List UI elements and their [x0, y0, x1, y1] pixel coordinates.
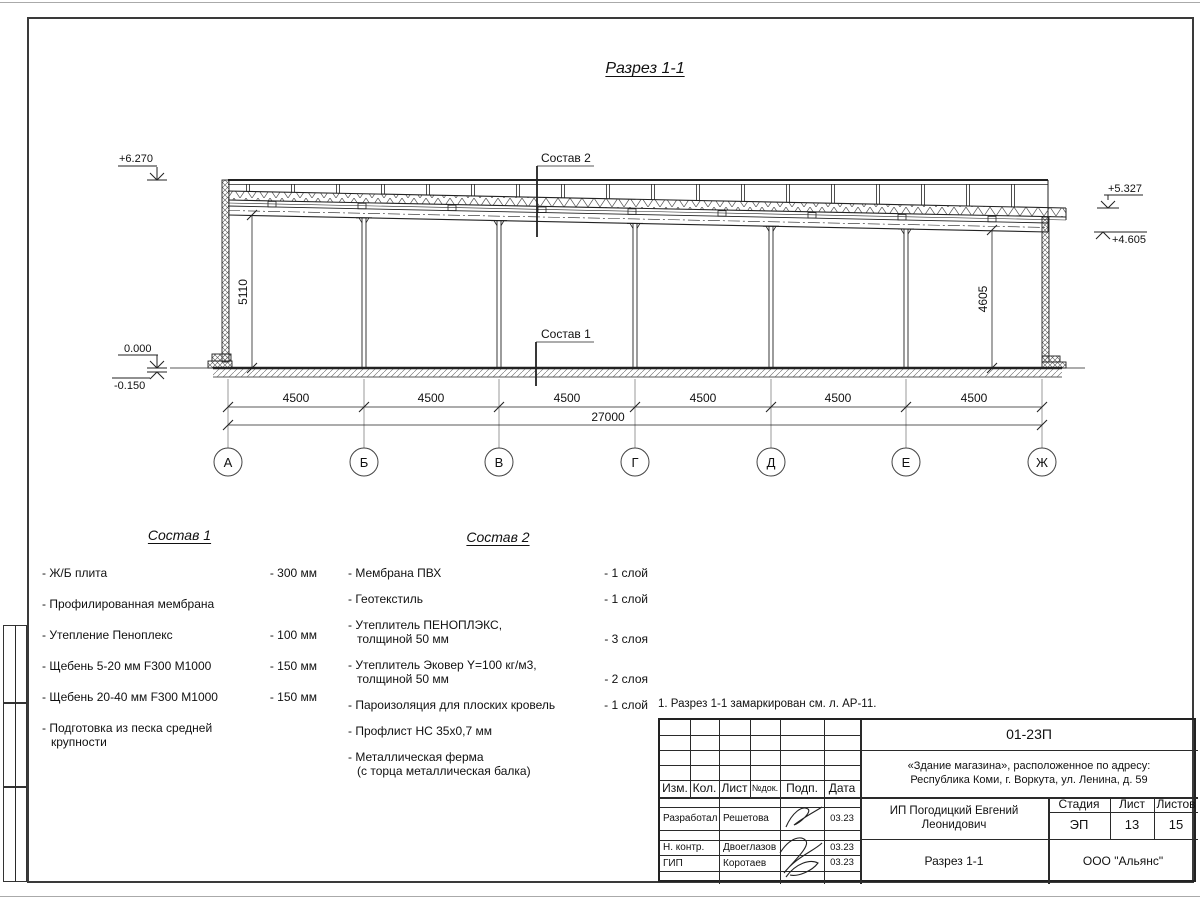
tb-project: «Здание магазина», расположенное по адре… — [860, 750, 1198, 797]
drawing-sheet: { "title": "Разрез 1-1", "section": { "l… — [0, 0, 1200, 900]
material-item: - Геотекстиль- 1 слой — [348, 592, 648, 606]
tb-header-sheets: Листов — [1154, 797, 1198, 812]
tb-header-sheet: Лист — [1110, 797, 1154, 812]
tb-name-0: Решетова — [723, 807, 780, 830]
material-value: - 3 слоя — [604, 632, 648, 646]
material-value: - 150 мм — [270, 690, 317, 704]
material-name: - Профилированная мембрана — [42, 597, 214, 611]
material-name: - Утеплитель ПЕНОПЛЭКС, толщиной 50 мм — [348, 618, 502, 646]
tb-header-data: Дата — [824, 780, 860, 797]
material-value: - 1 слой — [604, 592, 648, 606]
tb-role-2: ГИП — [663, 855, 719, 871]
note: 1. Разрез 1-1 замаркирован см. л. АР-11. — [658, 698, 1078, 710]
material-name: - Утепление Пеноплекс — [42, 628, 173, 642]
material-name: - Утеплитель Эковер Y=100 кг/м3, толщино… — [348, 658, 537, 686]
tb-date-0: 03.23 — [824, 807, 860, 830]
tb-name-1: Двоеглазов — [723, 840, 780, 855]
page-title: Разрез 1-1 — [560, 60, 730, 78]
material-value: - 2 слоя — [604, 672, 648, 686]
material-item: - Щебень 20-40 мм F300 М1000- 150 мм — [42, 690, 317, 704]
material-item: - Утеплитель Эковер Y=100 кг/м3, толщино… — [348, 658, 648, 686]
material-name: - Щебень 20-40 мм F300 М1000 — [42, 690, 218, 704]
material-name: - Мембрана ПВХ — [348, 566, 441, 580]
tb-date-2: 03.23 — [824, 855, 860, 871]
material-value: - 300 мм — [270, 566, 317, 580]
tb-drawing-title: Разрез 1-1 — [860, 839, 1048, 884]
tb-sheet-value: 13 — [1110, 812, 1154, 839]
material-name: - Подготовка из песка средней крупности — [42, 721, 212, 749]
material-name: - Щебень 5-20 мм F300 М1000 — [42, 659, 211, 673]
sheet-top-edge — [0, 2, 1200, 3]
material-item: - Металлическая ферма (с торца металличе… — [348, 750, 648, 778]
tb-header-izm: Изм. — [660, 780, 690, 797]
tb-date-1: 03.23 — [824, 840, 860, 855]
material-name: - Геотекстиль — [348, 592, 425, 606]
tb-header-stadia: Стадия — [1048, 797, 1110, 812]
sostav2-heading: Состав 2 — [348, 529, 648, 545]
material-name: - Металлическая ферма (с торца металличе… — [348, 750, 531, 778]
signature-1 — [778, 803, 826, 831]
signature-2 — [774, 833, 828, 881]
material-item: - Профлист НС 35х0,7 мм — [348, 724, 648, 738]
tb-doc-number: 01-23П — [860, 720, 1198, 750]
material-value: - 1 слой — [604, 698, 648, 712]
tb-project-line2: Республика Коми, г. Воркута, ул. Ленина,… — [910, 774, 1147, 788]
tb-header-podp: Подп. — [780, 780, 824, 797]
material-item: - Утепление Пеноплекс- 100 мм — [42, 628, 317, 642]
tb-name-2: Коротаев — [723, 855, 780, 871]
material-item: - Мембрана ПВХ- 1 слой — [348, 566, 648, 580]
tb-role-0: Разработал — [663, 807, 719, 830]
material-name: - Пароизоляция для плоских кровель — [348, 698, 555, 712]
tb-role-1: Н. контр. — [663, 840, 719, 855]
sostav1-list: - Ж/Б плита- 300 мм- Профилированная мем… — [42, 566, 317, 766]
tb-project-line1: «Здание магазина», расположенное по адре… — [908, 760, 1151, 774]
tb-header-kol: Кол. — [690, 780, 719, 797]
tb-sheets-value: 15 — [1154, 812, 1198, 839]
material-item: - Подготовка из песка средней крупности — [42, 721, 317, 749]
tb-header-list: Лист — [719, 780, 750, 797]
material-item: - Ж/Б плита- 300 мм — [42, 566, 317, 580]
sheet-bottom-edge — [0, 896, 1200, 897]
material-item: - Утеплитель ПЕНОПЛЭКС, толщиной 50 мм- … — [348, 618, 648, 646]
margin-box-divider — [15, 625, 16, 882]
tb-header-ndok: №док. — [750, 780, 780, 797]
material-name: - Профлист НС 35х0,7 мм — [348, 724, 492, 738]
sostav2-list: - Мембрана ПВХ- 1 слой- Геотекстиль- 1 с… — [348, 566, 648, 790]
title-block: Изм. Кол. Лист №док. Подп. Дата Разработ… — [658, 718, 1196, 882]
tb-company: ООО "Альянс" — [1048, 839, 1198, 884]
material-item: - Щебень 5-20 мм F300 М1000- 150 мм — [42, 659, 317, 673]
material-name: - Ж/Б плита — [42, 566, 107, 580]
tb-client: ИП Погодицкий Евгений Леонидович — [860, 797, 1048, 839]
sostav1-heading: Состав 1 — [42, 527, 317, 543]
tb-stadia-value: ЭП — [1048, 812, 1110, 839]
material-item: - Пароизоляция для плоских кровель- 1 сл… — [348, 698, 648, 712]
material-value: - 100 мм — [270, 628, 317, 642]
material-item: - Профилированная мембрана — [42, 597, 317, 611]
material-value: - 1 слой — [604, 566, 648, 580]
material-value: - 150 мм — [270, 659, 317, 673]
